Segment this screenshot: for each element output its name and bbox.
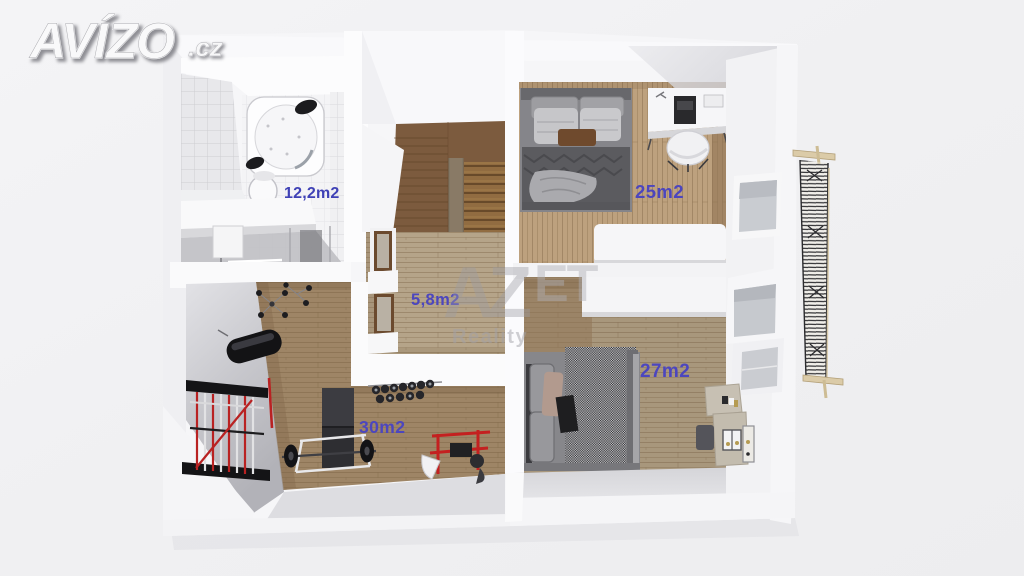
svg-text:12,2m2: 12,2m2 [284, 185, 339, 202]
svg-text:30m2: 30m2 [359, 417, 405, 437]
svg-text:ET: ET [534, 255, 599, 313]
svg-text:27m2: 27m2 [640, 361, 690, 382]
svg-text:.cz: .cz [188, 32, 223, 62]
svg-text:Reality: Reality [452, 326, 528, 348]
svg-text:25m2: 25m2 [635, 181, 684, 202]
svg-text:AZ: AZ [443, 253, 530, 333]
svg-text:AVÍZO: AVÍZO [28, 13, 175, 69]
